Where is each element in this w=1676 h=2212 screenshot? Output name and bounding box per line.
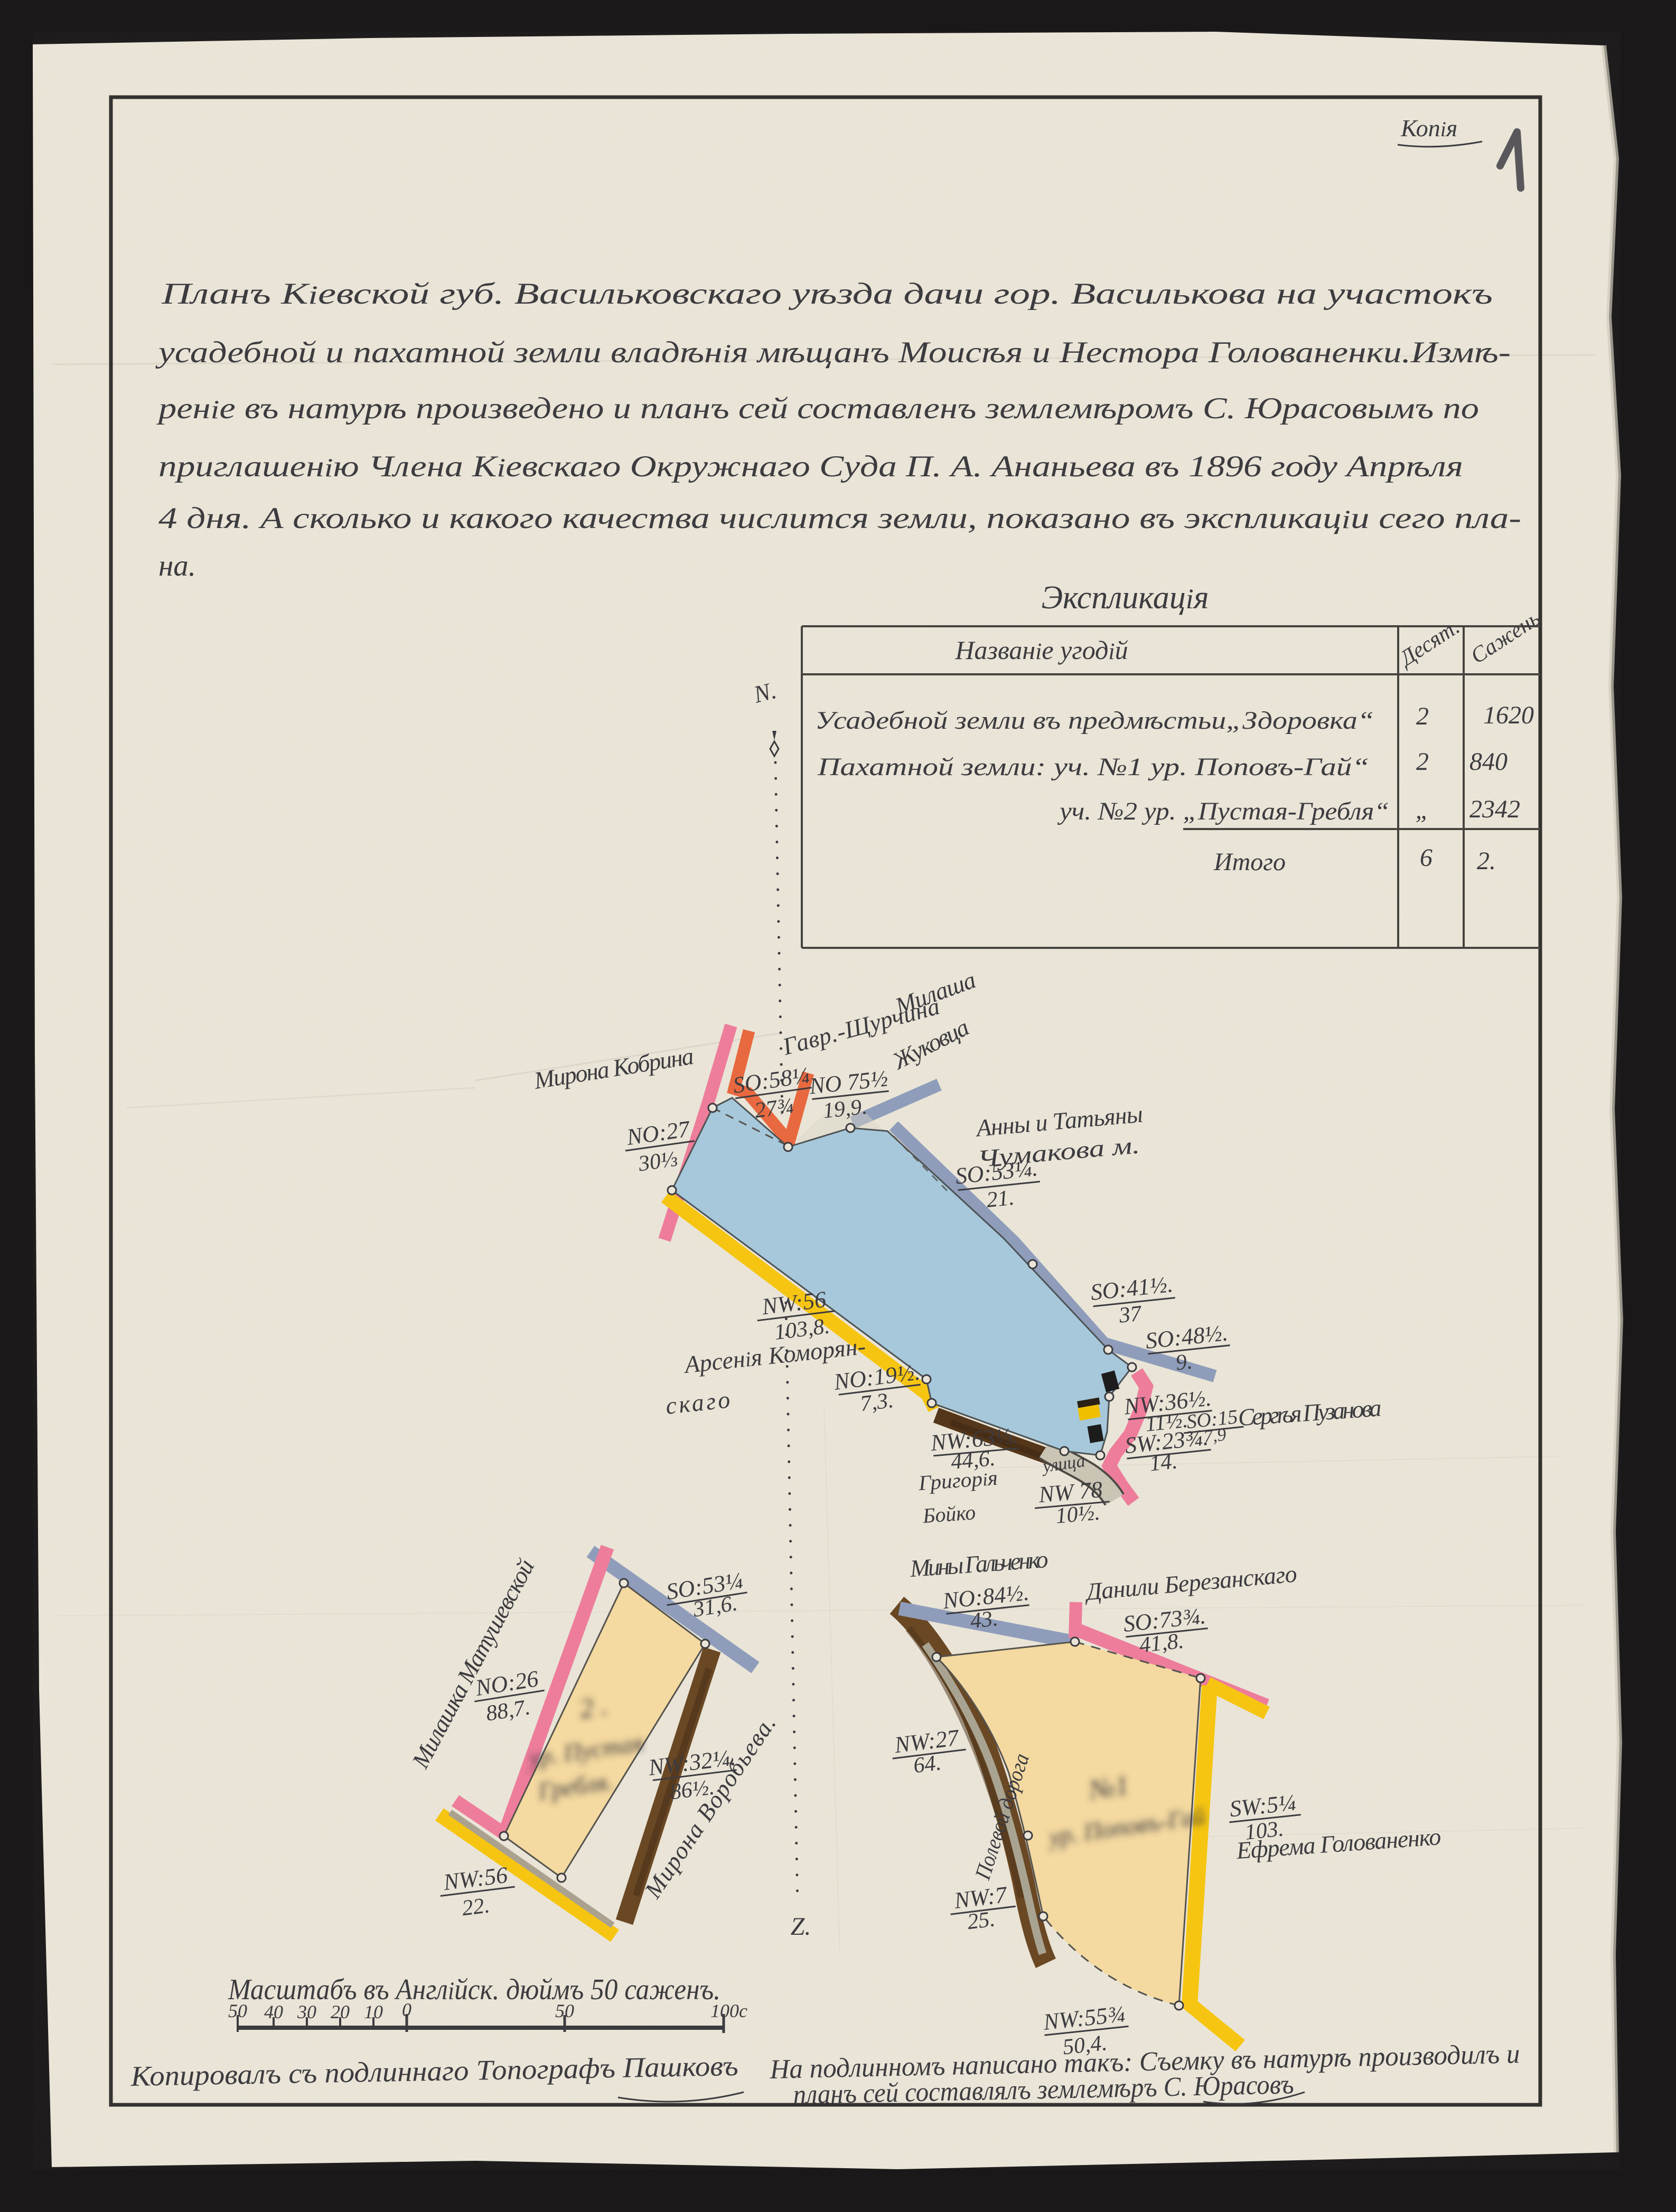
svg-text:7,3.: 7,3. (859, 1388, 895, 1416)
svg-text:22.: 22. (461, 1893, 491, 1921)
svg-text:Копія: Копія (1400, 115, 1457, 142)
svg-text:20: 20 (331, 2001, 350, 2022)
svg-text:50: 50 (555, 2000, 574, 2021)
svg-text:50: 50 (228, 2000, 247, 2021)
svg-text:реніе въ натурѣ произведено и: реніе въ натурѣ произведено и планъ сей … (156, 392, 1479, 425)
svg-text:2.: 2. (1477, 847, 1496, 875)
svg-text:100с: 100с (710, 2000, 747, 2021)
svg-text:„: „ (1416, 796, 1430, 824)
svg-text:Итого: Итого (1213, 848, 1286, 876)
svg-text:40: 40 (264, 2001, 283, 2022)
svg-text:усадебной и пахатной земли вла: усадебной и пахатной земли владѣнія мѣща… (155, 336, 1511, 369)
svg-text:Планъ Кіевской губ. Васильковс: Планъ Кіевской губ. Васильковскаго уѣзда… (161, 277, 1493, 310)
svg-text:64.: 64. (912, 1750, 943, 1778)
svg-text:Экспликація: Экспликація (1041, 580, 1209, 616)
svg-text:2: 2 (1416, 702, 1429, 730)
svg-text:30: 30 (297, 2001, 316, 2022)
svg-text:2: 2 (1416, 748, 1429, 776)
svg-text:14.: 14. (1148, 1449, 1178, 1476)
svg-text:1620: 1620 (1483, 701, 1534, 729)
svg-text:840: 840 (1469, 748, 1508, 776)
svg-text:2342: 2342 (1469, 795, 1520, 823)
svg-text:уч. №2 ур. „Пустая-Гребля“: уч. №2 ур. „Пустая-Гребля“ (1057, 797, 1389, 825)
svg-text:Z.: Z. (791, 1913, 811, 1941)
svg-text:10½.: 10½. (1055, 1500, 1101, 1528)
svg-text:на.: на. (158, 549, 196, 582)
svg-text:Названіе угодій: Названіе угодій (954, 635, 1128, 665)
svg-text:№1: №1 (1087, 1770, 1131, 1805)
svg-text:2 .: 2 . (578, 1691, 609, 1725)
svg-text:41,8.: 41,8. (1138, 1629, 1185, 1658)
svg-text:6: 6 (1420, 844, 1432, 872)
svg-text:19,9.: 19,9. (822, 1095, 868, 1124)
svg-text:0: 0 (402, 1999, 411, 2020)
svg-text:4 дня. А сколько и какого каче: 4 дня. А сколько и какого качества числи… (158, 502, 1521, 535)
svg-text:Бойко: Бойко (921, 1500, 976, 1528)
svg-text:37: 37 (1117, 1301, 1144, 1328)
svg-text:Пахатной земли: уч. №1 ур. Поп: Пахатной земли: уч. №1 ур. Поповъ-Гай“ (817, 753, 1369, 781)
svg-text:10: 10 (364, 2001, 383, 2022)
svg-text:Усадебной земли въ предмѣстьи„: Усадебной земли въ предмѣстьи„Здоровка“ (815, 707, 1374, 735)
svg-text:приглашенію Члена Кіевскаго Ок: приглашенію Члена Кіевскаго Окружнаго Су… (158, 450, 1463, 483)
svg-text:25.: 25. (966, 1907, 997, 1934)
svg-text:9.: 9. (1174, 1349, 1193, 1375)
svg-text:21.: 21. (985, 1185, 1015, 1212)
svg-text:43.: 43. (969, 1606, 999, 1633)
